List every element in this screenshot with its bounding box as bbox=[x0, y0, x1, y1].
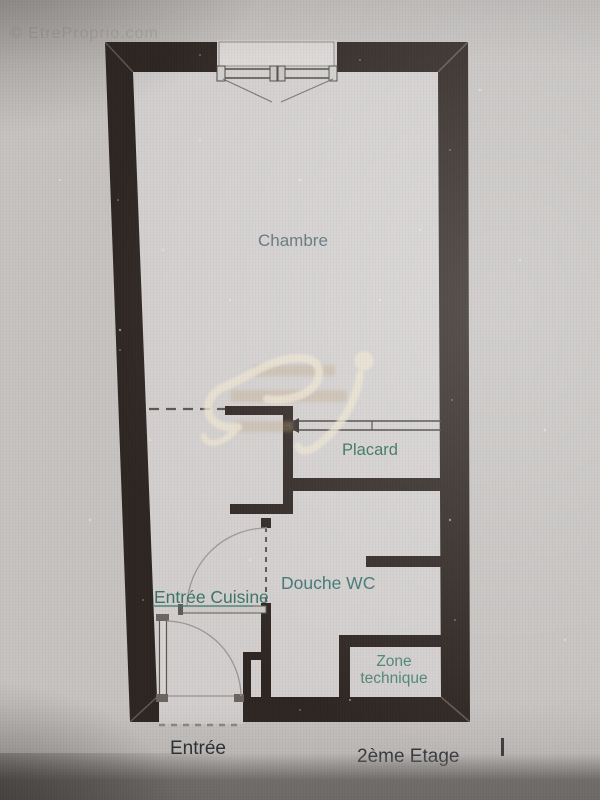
screenshot-root: © EtreProprio.com bbox=[0, 0, 600, 800]
label-chambre: Chambre bbox=[258, 231, 328, 250]
label-zone-technique-line2: technique bbox=[360, 670, 427, 687]
entrance-door-strike-jamb bbox=[234, 694, 244, 702]
label-zone-technique-line1: Zone bbox=[376, 653, 411, 670]
interior-door-leaf bbox=[181, 606, 266, 613]
window-mullion bbox=[278, 66, 285, 81]
entrance-door-hinge-jamb bbox=[156, 694, 168, 702]
cursor-mark bbox=[501, 738, 504, 756]
door-jamb-top bbox=[261, 518, 271, 528]
window-end-cap bbox=[329, 66, 337, 81]
wall-hall-stub bbox=[230, 504, 293, 514]
copyright-watermark: © EtreProprio.com bbox=[10, 25, 159, 42]
label-entree-cuisine: Entrée Cuisine bbox=[154, 587, 269, 607]
wall-chambre-partition bbox=[225, 406, 293, 415]
window-mullion bbox=[270, 66, 277, 81]
label-douche-wc: Douche WC bbox=[281, 573, 375, 593]
wall-placard-bottom bbox=[293, 478, 441, 491]
wall-bath-left bbox=[261, 612, 271, 697]
floorplan-canvas: © EtreProprio.com bbox=[0, 0, 600, 800]
caption-entree: Entrée bbox=[170, 738, 226, 759]
entrance-door-leaf bbox=[160, 619, 167, 697]
wall-shower-stub bbox=[366, 556, 441, 567]
entrance-door-cap bbox=[156, 614, 169, 621]
label-placard: Placard bbox=[342, 441, 398, 459]
wall-zone-technique-top bbox=[339, 635, 441, 647]
entrance-opening bbox=[159, 695, 243, 724]
logo-dot bbox=[355, 352, 374, 371]
caption-etage: 2ème Etage bbox=[357, 746, 459, 767]
footer-captions: Entrée 2ème Etage bbox=[170, 738, 504, 767]
wall-zone-technique-left bbox=[339, 635, 350, 697]
wall-duct-side bbox=[243, 652, 251, 697]
window-sill bbox=[219, 42, 334, 66]
